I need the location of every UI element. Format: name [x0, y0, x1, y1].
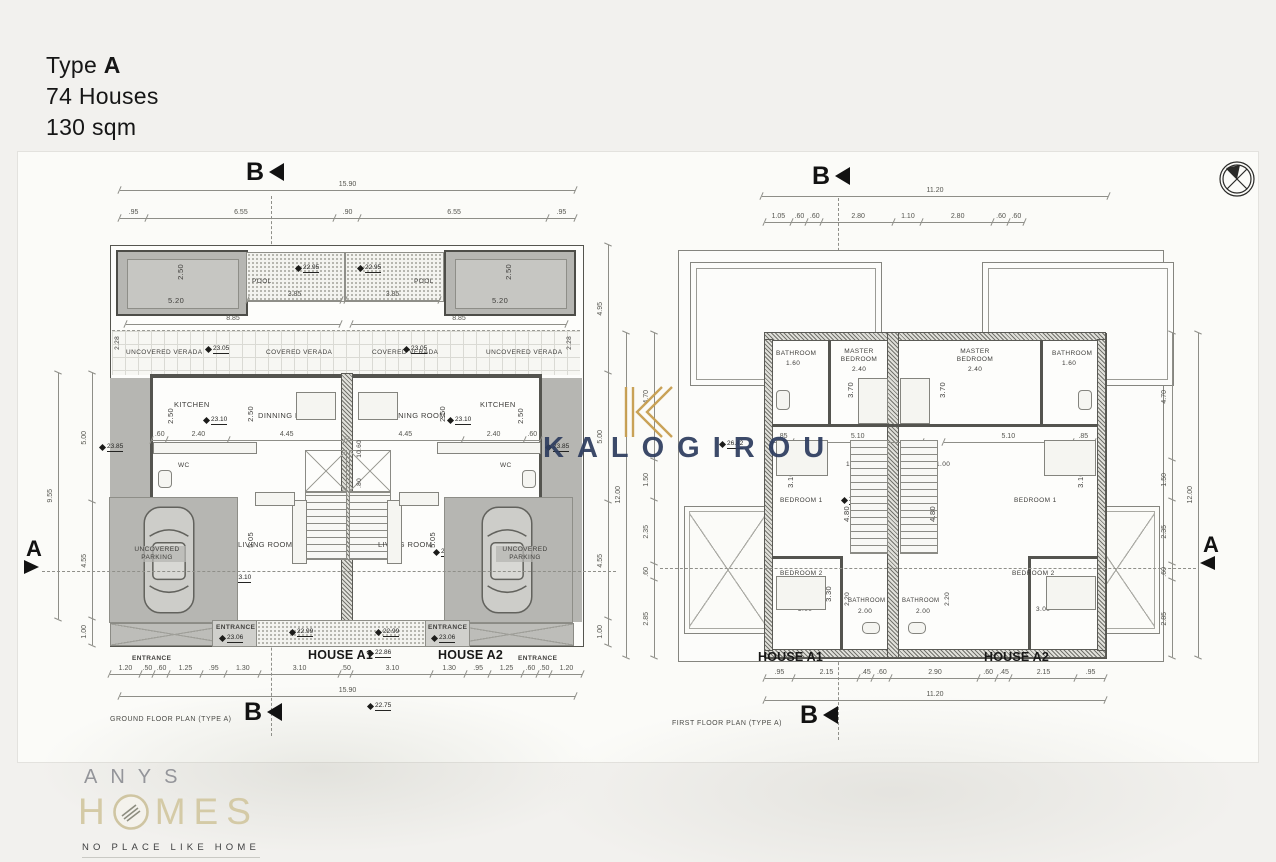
title-block: Type A 74 Houses 130 sqm: [46, 50, 159, 143]
dim-segment: 4.70: [1158, 333, 1173, 460]
covered-verada-label: COVERED VERADA: [266, 349, 332, 356]
dim-label: 9.55: [47, 489, 54, 503]
wc-label: WC: [500, 462, 512, 469]
dim-label: .95: [466, 665, 491, 674]
master-bedroom-label: MASTER BEDROOM: [836, 348, 882, 364]
section-a-arrow-icon: [1200, 556, 1215, 570]
first-top-total-dim: 11.20: [762, 184, 1108, 197]
dim-segment: .60: [993, 210, 1008, 223]
dim-label: .45: [997, 669, 1011, 678]
bedroom1-label: BEDROOM 1: [1014, 497, 1057, 504]
kitchen-dim-row-left: .602.404.45: [152, 428, 344, 441]
dim-label: 2.85: [643, 612, 650, 626]
stair-flight-left: [850, 440, 888, 554]
homes-o-icon: [111, 792, 151, 832]
dim-label: 2.80: [922, 213, 993, 222]
pool-label: POOL: [252, 278, 272, 285]
yard-elevation-marker: 23.85: [100, 443, 123, 452]
section-a-marker-right: A: [1203, 532, 1219, 557]
dim-label: .60: [643, 567, 650, 577]
stair-depth-dim: 4.80: [842, 506, 851, 522]
bed: [1044, 440, 1096, 476]
dim-segment: .50: [141, 662, 154, 675]
house-a1-label: HOUSE A1: [308, 648, 373, 662]
dim-segment: .60: [525, 428, 540, 441]
pool-deck-depth-dim: 2.50: [504, 264, 513, 280]
walkway-elevation-marker: 22.99: [376, 628, 399, 637]
sofa: [255, 492, 295, 506]
dim-segment: 1.30: [432, 662, 466, 675]
bath-fixture: [908, 622, 926, 634]
dim-segment: 1.05: [765, 210, 792, 223]
pool-elevation-marker: 22.95: [296, 264, 319, 273]
dim-label: .90: [335, 209, 361, 218]
brand-tagline: NO PLACE LIKE HOME: [82, 842, 260, 858]
dim-label: 4.95: [597, 302, 604, 316]
section-a-cut-line: [42, 571, 616, 572]
section-a-arrow-icon: [24, 560, 39, 574]
pool-elevation-marker: 22.95: [358, 264, 381, 273]
master-depth-dim: 3.70: [938, 382, 947, 398]
houses-line: 74 Houses: [46, 81, 159, 112]
dim-segment: 6.55: [147, 206, 334, 219]
kalogirou-watermark: KALOGIROU: [543, 432, 837, 465]
dim-segment: 2.15: [794, 666, 859, 679]
dim-label: 4.55: [81, 554, 88, 568]
dim-label: 1.25: [490, 665, 522, 674]
dim-label: 3.10: [352, 665, 432, 674]
bathroom2-width-dim: 2.00: [916, 608, 930, 615]
area-line: 130 sqm: [46, 112, 159, 143]
stair-flight-left: [305, 492, 347, 560]
first-left-segment-dims: 4.701.502.35.602.85: [640, 333, 655, 657]
dim-segment: 4.55: [78, 502, 93, 619]
dim-label: 12.00: [1187, 486, 1194, 504]
entrance-elevation-marker: 23.06: [220, 634, 243, 643]
section-a-marker-left: A: [26, 536, 42, 561]
dim-label: 1.25: [169, 665, 201, 674]
ground-top-total-dim: 15.90: [120, 178, 575, 191]
bathroom-width-dim: 1.60: [1062, 360, 1076, 367]
bedroom1-label: BEDROOM 1: [780, 497, 823, 504]
dim-segment: 4.45: [229, 428, 344, 441]
dim-segment: .60: [523, 662, 538, 675]
first-right-total-dim: 12.00: [1184, 333, 1199, 657]
dim-label: 11.20: [762, 187, 1108, 196]
dim-label: 2.85: [1161, 612, 1168, 626]
dim-label: .95: [1076, 669, 1105, 678]
dim-segment: .60: [1009, 210, 1024, 223]
uncovered-verada-label: UNCOVERED VERADA: [486, 349, 562, 356]
entry-walkway: [256, 620, 426, 647]
hall-length-dim: 10.60: [356, 440, 363, 458]
car-icon: [136, 504, 202, 621]
section-b-marker-top: B: [246, 160, 264, 185]
type-line: Type A: [46, 50, 159, 81]
dim-label: 5.00: [81, 431, 88, 445]
dim-segment: 1.00: [594, 619, 609, 645]
party-wall: [888, 333, 898, 657]
dim-segment: 1.10: [894, 210, 922, 223]
ground-top-segment-dims: .956.55.906.55.95: [120, 206, 575, 219]
dim-segment: 1.00: [78, 619, 93, 645]
wall: [1028, 556, 1098, 559]
dim-segment: 1.20: [110, 662, 141, 675]
dim-segment: .60: [792, 210, 807, 223]
type-letter: A: [104, 52, 121, 78]
kitchen-counter: [153, 442, 257, 454]
wall: [765, 340, 772, 650]
parking-label: UNCOVERED PARKING: [496, 546, 554, 562]
first-right-segment-dims: 4.701.502.35.602.85: [1158, 333, 1173, 657]
dim-label: 1.30: [432, 665, 466, 674]
master-bedroom-label: MASTER BEDROOM: [952, 348, 998, 364]
anys-wordmark: ANYS: [84, 766, 190, 789]
pool-deck-length-dim: 5.20: [492, 296, 508, 305]
dim-label: 1.50: [1161, 473, 1168, 487]
dim-segment: 2.40: [463, 428, 525, 441]
dim-label: 1.05: [765, 213, 792, 222]
parking-label: UNCOVERED PARKING: [128, 546, 186, 562]
uncovered-verada-label: UNCOVERED VERADA: [126, 349, 202, 356]
pool-deck-depth-dim: 2.50: [176, 264, 185, 280]
entrance-elevation-marker: 23.06: [432, 634, 455, 643]
kitchen-elevation-marker: 23.10: [448, 416, 471, 425]
wc-label: WC: [178, 462, 190, 469]
walkway-elevation-marker: 22.99: [290, 628, 313, 637]
kitchen-depth-dim: 2.50: [166, 408, 175, 424]
dim-segment: .95: [202, 662, 227, 675]
dim-label: 8.85: [352, 315, 566, 324]
section-b-arrow-icon: [823, 706, 838, 724]
dim-segment: .95: [1076, 666, 1105, 679]
section-b-marker-bottom: B: [244, 700, 262, 725]
pool-width-dim: 3.85: [248, 288, 341, 301]
dining-depth-dim: 2.50: [438, 406, 447, 422]
dim-segment: 3.10: [260, 662, 340, 675]
dim-segment: .60: [873, 666, 891, 679]
dim-segment: 1.25: [169, 662, 201, 675]
dim-segment: 3.10: [352, 662, 432, 675]
verada-depth-dim: 2.28: [566, 336, 573, 350]
dim-label: 2.40: [167, 431, 229, 440]
dim-label: 2.35: [643, 525, 650, 539]
homes-wordmark: H MES: [78, 792, 259, 832]
dim-label: .60: [979, 669, 997, 678]
kitchen-label: KITCHEN: [174, 400, 210, 409]
dim-segment: .60: [979, 666, 997, 679]
dim-segment: .45: [997, 666, 1011, 679]
verada-elevation-marker: 23.05: [404, 345, 427, 354]
dim-segment: 2.80: [822, 210, 893, 223]
dim-label: 4.45: [348, 431, 463, 440]
dim-label: 8.85: [126, 315, 340, 324]
dim-segment: 1.50: [640, 460, 655, 501]
house-a2-label: HOUSE A2: [438, 648, 503, 662]
bed: [900, 378, 930, 424]
dim-segment: 1.20: [551, 662, 582, 675]
master-width-dim: 2.40: [852, 366, 866, 373]
dim-segment: 2.85: [1158, 580, 1173, 657]
wc-toilet: [522, 470, 536, 488]
first-left-total-dim: 12.00: [612, 333, 627, 657]
bathroom2-depth-dim: 2.20: [844, 592, 851, 606]
wall: [1040, 340, 1043, 426]
kitchen-depth-dim: 2.50: [516, 408, 525, 424]
house-a1-label: HOUSE A1: [758, 650, 823, 664]
dim-segment: .95: [466, 662, 491, 675]
entrance-label: ENTRANCE: [518, 655, 557, 662]
dim-label: .95: [548, 209, 575, 218]
dim-segment: 2.15: [1011, 666, 1076, 679]
first-bottom-segment-dims: .952.15.45.602.90.60.452.15.95: [765, 666, 1105, 679]
stair-flight-right: [349, 492, 391, 560]
kitchen-label: KITCHEN: [480, 400, 516, 409]
dim-label: 15.90: [120, 181, 575, 190]
master-width-dim: 2.40: [968, 366, 982, 373]
deck-width-dim: 8.85: [352, 312, 566, 325]
wall: [1098, 340, 1105, 650]
dining-table: [296, 392, 336, 420]
dim-label: .95: [765, 669, 794, 678]
kitchen-elevation-marker: 23.10: [204, 416, 227, 425]
dim-label: 1.50: [643, 473, 650, 487]
dim-segment: 2.35: [1158, 500, 1173, 563]
hall-width-dim: .80: [356, 478, 363, 488]
dim-segment: .95: [548, 206, 575, 219]
ground-left-segment-dims: 5.004.551.00: [78, 373, 93, 645]
bathroom-label: BATHROOM: [776, 350, 816, 357]
dim-label: 1.10: [894, 213, 922, 222]
dining-table: [358, 392, 398, 420]
wall: [772, 556, 842, 559]
dim-label: 1.20: [551, 665, 582, 674]
entrance-label: ENTRANCE: [132, 655, 171, 662]
dim-segment: 2.40: [167, 428, 229, 441]
homes-rest: MES: [155, 792, 259, 832]
dim-label: 4.45: [229, 431, 344, 440]
sofa: [292, 500, 307, 564]
dim-label: 3.10: [260, 665, 340, 674]
pool-label: POOL: [414, 278, 434, 285]
dining-depth-dim: 2.50: [246, 406, 255, 422]
section-b-arrow-icon: [835, 167, 850, 185]
dim-label: 6.55: [147, 209, 334, 218]
stair-void-left: [305, 450, 347, 492]
dim-label: .60: [525, 431, 540, 440]
bed: [1046, 576, 1096, 610]
dim-label: 1.20: [110, 665, 141, 674]
dim-label: .50: [141, 665, 154, 674]
house-a2-label: HOUSE A2: [984, 650, 1049, 664]
bathroom2-width-dim: 2.00: [858, 608, 872, 615]
dim-label: .45: [859, 669, 873, 678]
section-a-cut-line: [660, 568, 1196, 569]
homes-h: H: [78, 792, 113, 832]
dim-label: 4.70: [1161, 390, 1168, 404]
verada-depth-dim: 2.28: [114, 336, 121, 350]
dim-segment: 6.55: [360, 206, 547, 219]
dim-label: .60: [993, 213, 1008, 222]
dim-segment: 1.50: [1158, 460, 1173, 501]
bathroom-label: BATHROOM: [848, 598, 885, 604]
dim-label: .60: [154, 665, 169, 674]
dim-label: 1.00: [597, 625, 604, 639]
plan-sheet-page: Type A 74 Houses 130 sqm 15.90 .956.55.9…: [0, 0, 1276, 862]
dim-label: 1.30: [226, 665, 260, 674]
dim-segment: 2.35: [640, 500, 655, 563]
pool-width-dim: 3.85: [346, 288, 439, 301]
dim-segment: 4.55: [594, 502, 609, 619]
dim-segment: 4.95: [594, 245, 609, 373]
ground-left-total-dim: 9.55: [44, 373, 59, 619]
dim-label: 11.20: [765, 691, 1105, 700]
dim-label: 2.90: [891, 669, 979, 678]
dim-segment: .95: [765, 666, 794, 679]
dim-segment: 2.80: [922, 210, 993, 223]
dim-segment: 1.25: [490, 662, 522, 675]
porch-elevation-marker: 22.86: [368, 649, 391, 658]
verada-elevation-marker: 23.05: [206, 345, 229, 354]
bathroom2-depth-dim: 2.20: [944, 592, 951, 606]
dim-segment: 2.90: [891, 666, 979, 679]
dim-label: 15.90: [120, 687, 575, 696]
dim-label: 2.15: [1011, 669, 1076, 678]
dim-label: .95: [202, 665, 227, 674]
dim-label: 2.15: [794, 669, 859, 678]
dim-label: 2.80: [822, 213, 893, 222]
wall: [765, 333, 1105, 340]
first-bottom-total-dim: 11.20: [765, 688, 1105, 701]
dim-label: .60: [873, 669, 891, 678]
bathroom-width-dim: 1.60: [786, 360, 800, 367]
wall: [840, 556, 843, 650]
wall: [828, 340, 831, 426]
bath-fixture: [1078, 390, 1092, 410]
dim-segment: .90: [335, 206, 361, 219]
dim-segment: 2.85: [640, 580, 655, 657]
ground-bottom-segment-dims: 1.20.50.601.25.951.303.10.503.101.30.951…: [110, 662, 582, 675]
void-box-left: [684, 506, 772, 634]
dim-label: .60: [523, 665, 538, 674]
car-icon: [474, 504, 540, 621]
sofa: [387, 500, 402, 564]
dim-label: 6.55: [360, 209, 547, 218]
dim-label: 1.00: [81, 625, 88, 639]
dim-label: .50: [538, 665, 551, 674]
wall: [772, 424, 1098, 427]
dim-label: .60: [792, 213, 807, 222]
dim-segment: .45: [859, 666, 873, 679]
street-elevation-marker: 22.75: [368, 702, 391, 711]
dim-label: .95: [120, 209, 147, 218]
living-depth-dim: 5.05: [428, 532, 437, 548]
stair-depth-dim: 4.80: [928, 506, 937, 522]
section-b-arrow-icon: [267, 703, 282, 721]
bath-fixture: [776, 390, 790, 410]
dim-label: .60: [1009, 213, 1024, 222]
pool-deck-length-dim: 5.20: [168, 296, 184, 305]
dim-label: 3.85: [346, 291, 439, 300]
dim-segment: .95: [120, 206, 147, 219]
compass-icon: [1214, 156, 1260, 207]
dim-label: 3.85: [248, 291, 341, 300]
kitchen-counter: [437, 442, 541, 454]
bathroom-label: BATHROOM: [1052, 350, 1092, 357]
dim-segment: 4.45: [348, 428, 463, 441]
landing-dim: 1.00: [936, 461, 950, 468]
kitchen-dim-row-right: 4.452.40.60: [348, 428, 540, 441]
master-depth-dim: 3.70: [846, 382, 855, 398]
dim-label: 4.55: [597, 554, 604, 568]
bed: [776, 576, 826, 610]
entrance-label: ENTRANCE: [216, 624, 255, 631]
entrance-label: ENTRANCE: [428, 624, 467, 631]
sofa: [399, 492, 439, 506]
ground-bottom-total-dim: 15.90: [120, 684, 575, 697]
dim-label: 2.35: [1161, 525, 1168, 539]
first-plan-caption: FIRST FLOOR PLAN (TYPE A): [672, 720, 782, 727]
section-b-arrow-icon: [269, 163, 284, 181]
dim-segment: 5.00: [78, 373, 93, 502]
ground-plan-caption: GROUND FLOOR PLAN (TYPE A): [110, 716, 232, 723]
dim-label: 2.40: [463, 431, 525, 440]
bath-fixture: [862, 622, 880, 634]
bathroom-label: BATHROOM: [902, 598, 939, 604]
dim-segment: 1.30: [226, 662, 260, 675]
wc-toilet: [158, 470, 172, 488]
bed: [858, 378, 888, 424]
deck-width-dim: 8.85: [126, 312, 340, 325]
section-b-marker-bottom: B: [800, 703, 818, 728]
first-top-segment-dims: 1.05.60.602.801.102.80.60.60: [765, 210, 1024, 223]
living-depth-dim: 5.05: [246, 532, 255, 548]
dim-label: 12.00: [615, 486, 622, 504]
stair-flight-right: [900, 440, 938, 554]
